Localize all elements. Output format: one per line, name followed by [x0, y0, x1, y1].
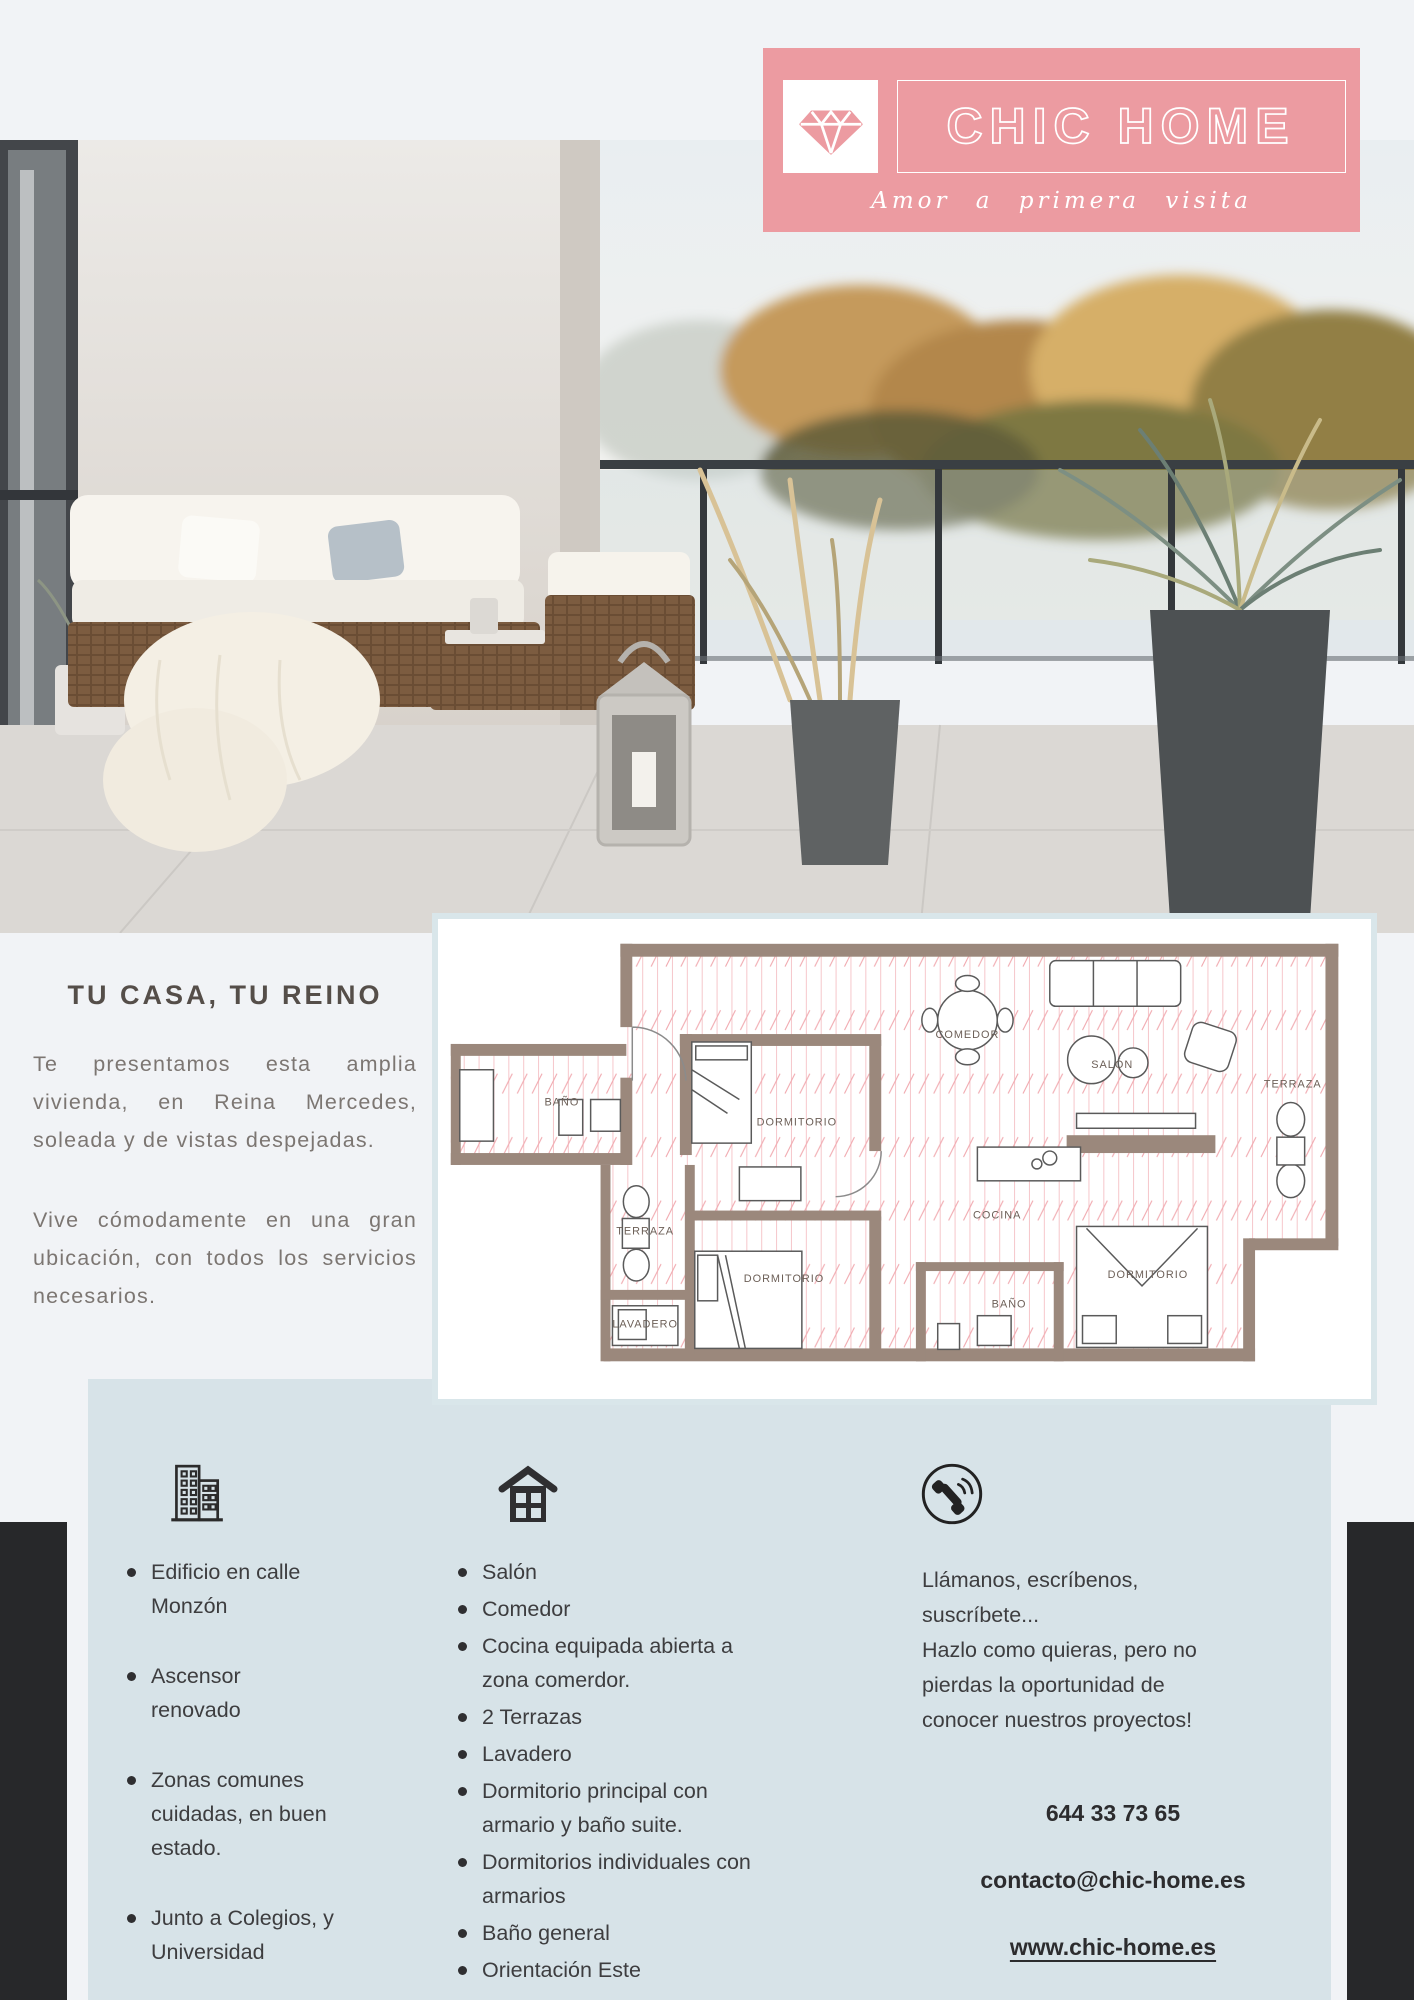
list-item: Ascensor renovado [125, 1659, 425, 1727]
phone-icon [918, 1459, 986, 1529]
interior-features-column: SalónComedorCocina equipada abierta a zo… [456, 1555, 856, 1990]
brand-tagline: Amor a primera visita [763, 188, 1360, 214]
contact-phone: 644 33 73 65 [922, 1800, 1304, 1827]
interior-feature-list: SalónComedorCocina equipada abierta a zo… [456, 1555, 856, 1987]
list-item: Baño general [456, 1916, 856, 1950]
contact-column: Llámanos, escríbenos, suscríbete... Hazl… [922, 1563, 1304, 1961]
room-label-comedor: COMEDOR [936, 1029, 1000, 1041]
page-title: TU CASA, TU REINO [33, 980, 417, 1011]
floorplan-drawing: BAÑO DORMITORIO COMEDOR SALÓN TERRAZA TE… [440, 921, 1369, 1397]
room-label-dormitorio-1: DORMITORIO [757, 1116, 838, 1128]
list-item: Dormitorios individuales con armarios [456, 1845, 856, 1913]
room-label-dormitorio-2: DORMITORIO [744, 1273, 825, 1285]
list-item: Zonas comunes cuidadas, en buen estado. [125, 1763, 425, 1865]
room-label-cocina: COCINA [973, 1210, 1021, 1222]
list-item: Edificio en calle Monzón [125, 1555, 425, 1623]
brand-logo [783, 80, 878, 173]
room-label-salon: SALÓN [1091, 1058, 1133, 1071]
features-panel: Edificio en calle MonzónAscensor renovad… [88, 1379, 1331, 2000]
list-item: Salón [456, 1555, 856, 1589]
decor-block-left [0, 1522, 67, 2000]
room-label-bano: BAÑO [544, 1095, 579, 1108]
decor-block-right [1347, 1522, 1414, 2000]
flyer-page: CHIC HOME Amor a primera visita TU CASA,… [0, 0, 1414, 2000]
room-label-lavadero: LAVADERO [612, 1319, 678, 1331]
building-icon [162, 1459, 228, 1529]
contact-intro-1: Llámanos, escríbenos, suscríbete... [922, 1563, 1304, 1633]
brand-name: CHIC HOME [946, 98, 1295, 154]
room-label-terraza-derecha: TERRAZA [1264, 1079, 1322, 1091]
list-item: Dormitorio principal con armario y baño … [456, 1774, 856, 1842]
list-item: 2 Terrazas [456, 1700, 856, 1734]
house-icon [496, 1461, 560, 1527]
contact-intro-2: Hazlo como quieras, pero no pierdas la o… [922, 1633, 1304, 1738]
list-item: Cocina equipada abierta a zona comerdor. [456, 1629, 856, 1697]
intro-paragraph: Te presentamos esta amplia vivienda, en … [33, 1045, 417, 1159]
list-item: Orientación Este [456, 1953, 856, 1987]
room-label-dormitorio-3: DORMITORIO [1108, 1269, 1189, 1281]
contact-website-link[interactable]: www.chic-home.es [922, 1934, 1304, 1961]
terrace-photo [0, 140, 1414, 933]
building-feature-list: Edificio en calle MonzónAscensor renovad… [125, 1555, 425, 1969]
floorplan-card: BAÑO DORMITORIO COMEDOR SALÓN TERRAZA TE… [432, 913, 1377, 1405]
room-label-bano-2: BAÑO [992, 1298, 1027, 1311]
intro-paragraph: Vive cómodamente en una gran ubicación, … [33, 1201, 417, 1315]
list-item: Junto a Colegios, y Universidad [125, 1901, 425, 1969]
building-features-column: Edificio en calle MonzónAscensor renovad… [125, 1555, 425, 2000]
brand-wordmark-frame: CHIC HOME [897, 80, 1346, 173]
contact-email: contacto@chic-home.es [922, 1867, 1304, 1894]
intro-section: TU CASA, TU REINO Te presentamos esta am… [33, 980, 417, 1357]
room-label-terraza-izquierda: TERRAZA [616, 1225, 674, 1237]
diamond-icon [798, 94, 864, 160]
list-item: Comedor [456, 1592, 856, 1626]
list-item: Lavadero [456, 1737, 856, 1771]
brand-banner: CHIC HOME Amor a primera visita [763, 48, 1360, 232]
